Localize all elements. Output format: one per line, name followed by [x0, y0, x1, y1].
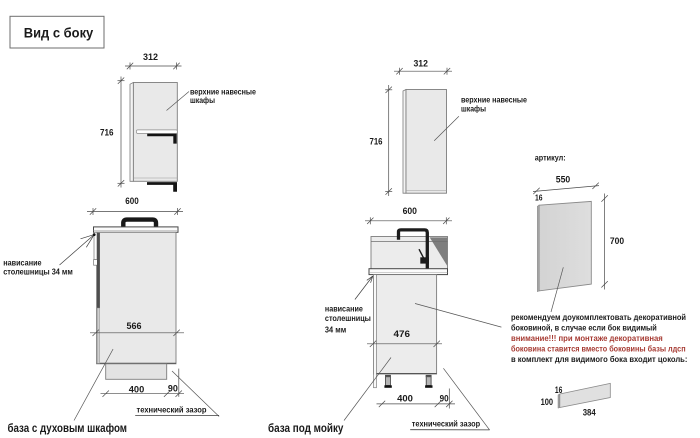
svg-text:боковина ставится вместо боков: боковина ставится вместо боковины базы л…: [511, 344, 686, 354]
svg-text:в комплект для видимого бока в: в комплект для видимого бока входит цоко…: [511, 354, 688, 364]
svg-text:384: 384: [583, 407, 597, 417]
svg-text:476: 476: [394, 329, 411, 339]
svg-text:566: 566: [127, 321, 142, 331]
svg-text:Вид с боку: Вид с боку: [24, 24, 94, 40]
svg-text:база под мойку: база под мойку: [268, 422, 344, 435]
svg-text:700: 700: [610, 236, 624, 246]
svg-text:716: 716: [370, 137, 383, 147]
svg-text:внимание!!! при монтаже декора: внимание!!! при монтаже декоративная: [511, 333, 663, 343]
svg-text:400: 400: [129, 385, 145, 395]
svg-text:шкафы: шкафы: [190, 95, 215, 105]
svg-text:16: 16: [535, 192, 543, 202]
svg-text:90: 90: [168, 384, 178, 394]
svg-text:312: 312: [143, 52, 158, 62]
svg-text:артикул:: артикул:: [535, 152, 566, 162]
svg-text:100: 100: [541, 397, 554, 407]
svg-text:90: 90: [440, 393, 449, 403]
svg-text:нависание: нависание: [325, 304, 363, 314]
svg-text:600: 600: [403, 206, 417, 216]
svg-text:550: 550: [556, 174, 571, 184]
svg-text:база с духовым шкафом: база с духовым шкафом: [8, 422, 128, 435]
svg-text:столешницы 34 мм: столешницы 34 мм: [3, 267, 73, 277]
svg-text:технический зазор: технический зазор: [412, 419, 480, 429]
svg-text:600: 600: [125, 196, 139, 206]
svg-text:шкафы: шкафы: [461, 103, 486, 113]
svg-text:боковиной, в случае если бок в: боковиной, в случае если бок видимый: [511, 323, 657, 333]
svg-text:технический зазор: технический зазор: [137, 405, 207, 415]
svg-text:312: 312: [413, 58, 428, 68]
svg-text:400: 400: [397, 394, 413, 404]
svg-text:716: 716: [100, 127, 114, 137]
svg-text:рекомендуем доукомплектовать д: рекомендуем доукомплектовать декоративно…: [511, 312, 686, 322]
svg-text:16: 16: [555, 385, 563, 395]
svg-text:столешницы: столешницы: [325, 313, 371, 323]
svg-text:34 мм: 34 мм: [325, 324, 346, 334]
